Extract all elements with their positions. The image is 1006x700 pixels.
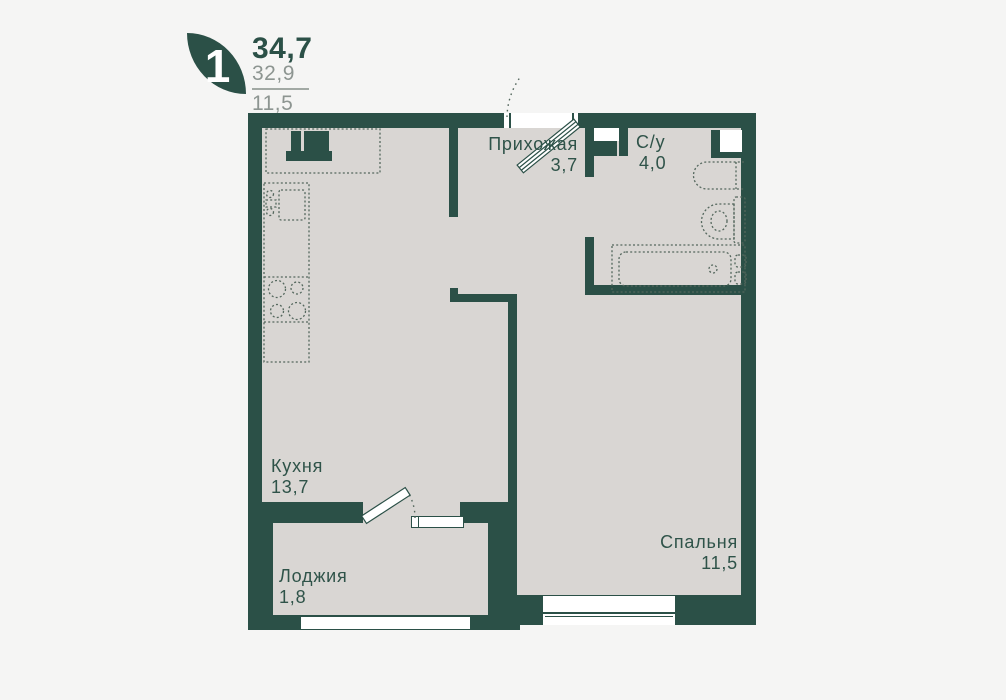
kitchen-name: Кухня: [271, 456, 323, 476]
kitchen-area: 13,7: [271, 477, 323, 498]
bathroom-niche: [594, 128, 619, 141]
label-kitchen: Кухня 13,7: [271, 456, 323, 498]
kitchen-vent-block-base: [286, 151, 332, 161]
bedroom-window-sill-line: [545, 616, 673, 617]
living-area: 32,9: [252, 63, 309, 90]
wall-right: [741, 113, 756, 625]
bedroom-window: [543, 596, 675, 625]
wall-top: [248, 113, 756, 128]
rooms-count-leaf-icon: 1: [187, 33, 246, 94]
bedroom-area: 11,5: [600, 553, 738, 574]
kitchen-area-legend: 11,5: [252, 93, 312, 115]
wall-living-bedroom: [508, 302, 517, 595]
rooms-count: 1: [205, 42, 231, 88]
entrance-jamb-left: [509, 113, 511, 128]
entrance-opening: [504, 113, 578, 128]
bathroom-area: 4,0: [636, 153, 706, 174]
label-hallway: Прихожая 3,7: [449, 134, 578, 176]
total-area: 34,7: [252, 34, 312, 63]
bedroom-name: Спальня: [660, 532, 738, 552]
wall-bathroom-niche-jamb: [619, 128, 628, 156]
bathroom-name: С/у: [636, 132, 665, 152]
wall-kitchen-loggia: [262, 502, 363, 523]
entrance-jamb-right: [572, 113, 574, 128]
wall-hallway-bottom: [450, 294, 517, 302]
wall-shaft-bottom: [711, 152, 742, 158]
bedroom-window-frame-line: [543, 612, 675, 614]
balcony-window: [411, 516, 464, 528]
floor-plan: 1 34,7 32,9 11,5: [0, 0, 1006, 700]
label-loggia: Лоджия 1,8: [279, 566, 348, 608]
wall-bathroom-niche-bar: [585, 141, 617, 156]
hallway-name: Прихожая: [488, 134, 578, 154]
label-bedroom: Спальня 11,5: [600, 532, 738, 574]
wall-bathroom-bottom: [585, 285, 741, 295]
vent-shaft: [720, 130, 742, 152]
hallway-area: 3,7: [449, 155, 578, 176]
loggia-name: Лоджия: [279, 566, 348, 586]
wall-bathroom-left-lower: [585, 237, 594, 292]
loggia-glazing: [301, 616, 470, 630]
legend-areas: 34,7 32,9 11,5: [252, 34, 312, 115]
label-bathroom: С/у 4,0: [636, 132, 706, 174]
loggia-area: 1,8: [279, 587, 348, 608]
balcony-window-jamb: [418, 517, 419, 527]
